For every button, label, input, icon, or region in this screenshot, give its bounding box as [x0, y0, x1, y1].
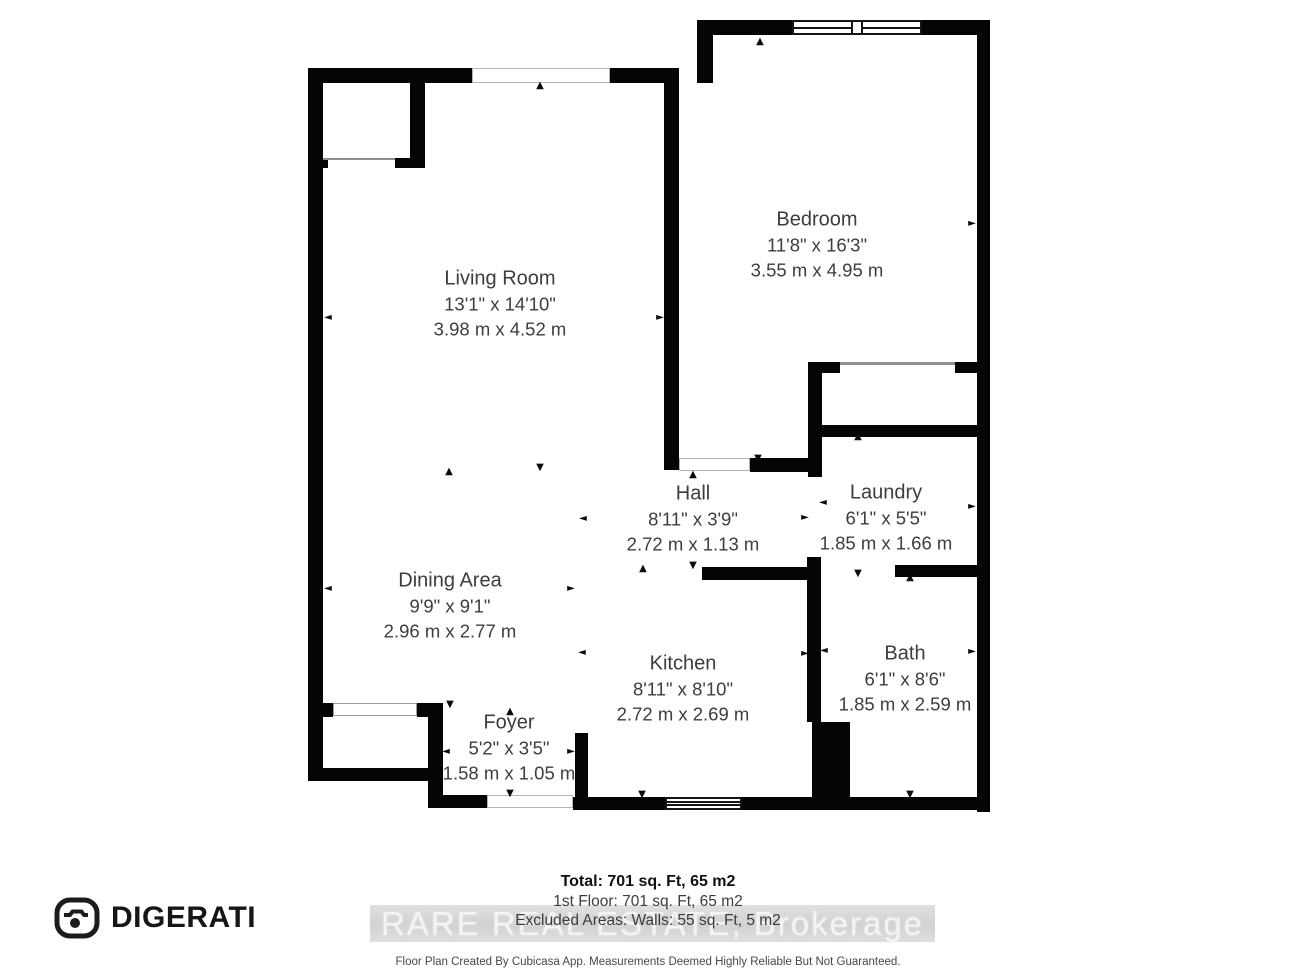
floorplan: ▲▲►◄►▲▼▼▲▲◄►◄►▲▼▼▲◄►◄►◄►▼▲◄►▼▼▼Living Ro…	[0, 0, 1300, 975]
wall	[428, 703, 443, 808]
room-label-kitchen: Kitchen8'11" x 8'10"2.72 m x 2.69 m	[617, 652, 750, 727]
room-dim-metric: 2.72 m x 1.13 m	[627, 532, 760, 557]
first-floor-area: 1st Floor: 701 sq. Ft, 65 m2	[398, 892, 898, 912]
entry-door-opening	[487, 795, 573, 808]
total-area: Total: 701 sq. Ft, 65 m2	[398, 872, 898, 892]
measure-arrow-right: ►	[968, 219, 976, 229]
room-name: Laundry	[820, 481, 953, 506]
room-dim-metric: 3.98 m x 4.52 m	[434, 317, 567, 342]
room-dim-imperial: 5'2" x 3'5"	[443, 736, 576, 761]
measure-arrow-down: ▼	[689, 561, 697, 571]
room-label-bath: Bath6'1" x 8'6"1.85 m x 2.59 m	[839, 642, 972, 717]
room-dim-imperial: 8'11" x 8'10"	[617, 677, 750, 702]
wall	[697, 20, 713, 83]
wall	[308, 68, 472, 83]
room-dim-metric: 1.58 m x 1.05 m	[443, 761, 576, 786]
measure-arrow-up: ▲	[536, 81, 544, 91]
wall	[702, 567, 808, 580]
room-dim-metric: 2.72 m x 2.69 m	[617, 702, 750, 727]
disclaimer: Floor Plan Created By Cubicasa App. Meas…	[348, 956, 948, 968]
wall	[808, 362, 822, 477]
digerati-logo: DIGERATI	[54, 897, 256, 939]
wall	[417, 703, 430, 717]
wall	[410, 83, 425, 168]
foyer-closet-door	[333, 703, 417, 716]
wall	[808, 425, 977, 437]
camera-icon	[54, 897, 100, 939]
measure-arrow-right: ►	[968, 502, 976, 512]
measure-arrow-down: ▼	[854, 569, 862, 579]
brand-name: DIGERATI	[111, 901, 256, 935]
measure-arrow-left: ◄	[324, 584, 332, 594]
room-name: Dining Area	[384, 569, 517, 594]
measure-arrow-up: ▲	[639, 564, 647, 574]
measure-arrow-up: ▲	[689, 470, 697, 480]
measure-arrow-up: ▲	[756, 37, 764, 47]
wall	[812, 722, 850, 808]
wall	[308, 68, 323, 780]
room-dim-imperial: 13'1" x 14'10"	[434, 292, 567, 317]
measure-arrow-down: ▼	[638, 790, 646, 800]
measure-arrow-down: ▼	[906, 790, 914, 800]
measure-arrow-left: ◄	[579, 514, 587, 524]
room-dim-metric: 3.55 m x 4.95 m	[751, 258, 884, 283]
wall	[308, 768, 443, 781]
measure-arrow-right: ►	[801, 513, 809, 523]
room-label-hall: Hall8'11" x 3'9"2.72 m x 1.13 m	[627, 482, 760, 557]
measure-arrow-down: ▼	[536, 463, 544, 473]
room-dim-metric: 1.85 m x 1.66 m	[820, 531, 953, 556]
wall	[742, 797, 990, 810]
bedroom-window	[792, 20, 922, 35]
area-summary: Total: 701 sq. Ft, 65 m2 1st Floor: 701 …	[398, 872, 898, 931]
wall	[610, 68, 679, 83]
room-dim-imperial: 9'9" x 9'1"	[384, 594, 517, 619]
measure-arrow-down: ▼	[754, 454, 762, 464]
room-label-living-room: Living Room13'1" x 14'10"3.98 m x 4.52 m	[434, 267, 567, 342]
measure-arrow-up: ▲	[854, 432, 862, 442]
room-name: Kitchen	[617, 652, 750, 677]
measure-arrow-left: ◄	[578, 648, 586, 658]
wall	[664, 83, 679, 470]
room-label-foyer: Foyer5'2" x 3'5"1.58 m x 1.05 m	[443, 711, 576, 786]
floorplan-page: ▲▲►◄►▲▼▼▲▲◄►◄►▲▼▼▲◄►◄►◄►▼▲◄►▼▼▼Living Ro…	[0, 0, 1300, 975]
room-name: Hall	[627, 482, 760, 507]
room-dim-imperial: 6'1" x 8'6"	[839, 667, 972, 692]
wall	[977, 20, 990, 812]
room-label-laundry: Laundry6'1" x 5'5"1.85 m x 1.66 m	[820, 481, 953, 556]
measure-arrow-up: ▲	[445, 467, 453, 477]
room-name: Bath	[839, 642, 972, 667]
wall	[575, 733, 588, 810]
living-closet-line	[323, 158, 395, 160]
room-name: Bedroom	[751, 208, 884, 233]
bedroom-closet-slider	[840, 362, 955, 365]
wall	[395, 158, 425, 168]
wall	[807, 557, 821, 722]
room-label-dining-area: Dining Area9'9" x 9'1"2.96 m x 2.77 m	[384, 569, 517, 644]
room-dim-metric: 2.96 m x 2.77 m	[384, 619, 517, 644]
measure-arrow-left: ◄	[820, 646, 828, 656]
room-name: Foyer	[443, 711, 576, 736]
measure-arrow-right: ►	[567, 584, 575, 594]
kitchen-window	[665, 797, 742, 810]
excluded-area: Excluded Areas: Walls: 55 sq. Ft, 5 m2	[398, 911, 898, 931]
room-dim-imperial: 11'8" x 16'3"	[751, 233, 884, 258]
room-dim-imperial: 8'11" x 3'9"	[627, 507, 760, 532]
room-label-bedroom: Bedroom11'8" x 16'3"3.55 m x 4.95 m	[751, 208, 884, 283]
wall	[955, 362, 977, 373]
room-dim-metric: 1.85 m x 2.59 m	[839, 692, 972, 717]
measure-arrow-left: ◄	[324, 313, 332, 323]
room-dim-imperial: 6'1" x 5'5"	[820, 506, 953, 531]
measure-arrow-right: ►	[656, 313, 664, 323]
room-name: Living Room	[434, 267, 567, 292]
measure-arrow-down: ▼	[446, 700, 454, 710]
measure-arrow-up: ▲	[906, 573, 914, 583]
measure-arrow-down: ▼	[506, 789, 514, 799]
measure-arrow-right: ►	[801, 649, 809, 659]
wall	[822, 362, 840, 373]
wall	[323, 703, 333, 717]
